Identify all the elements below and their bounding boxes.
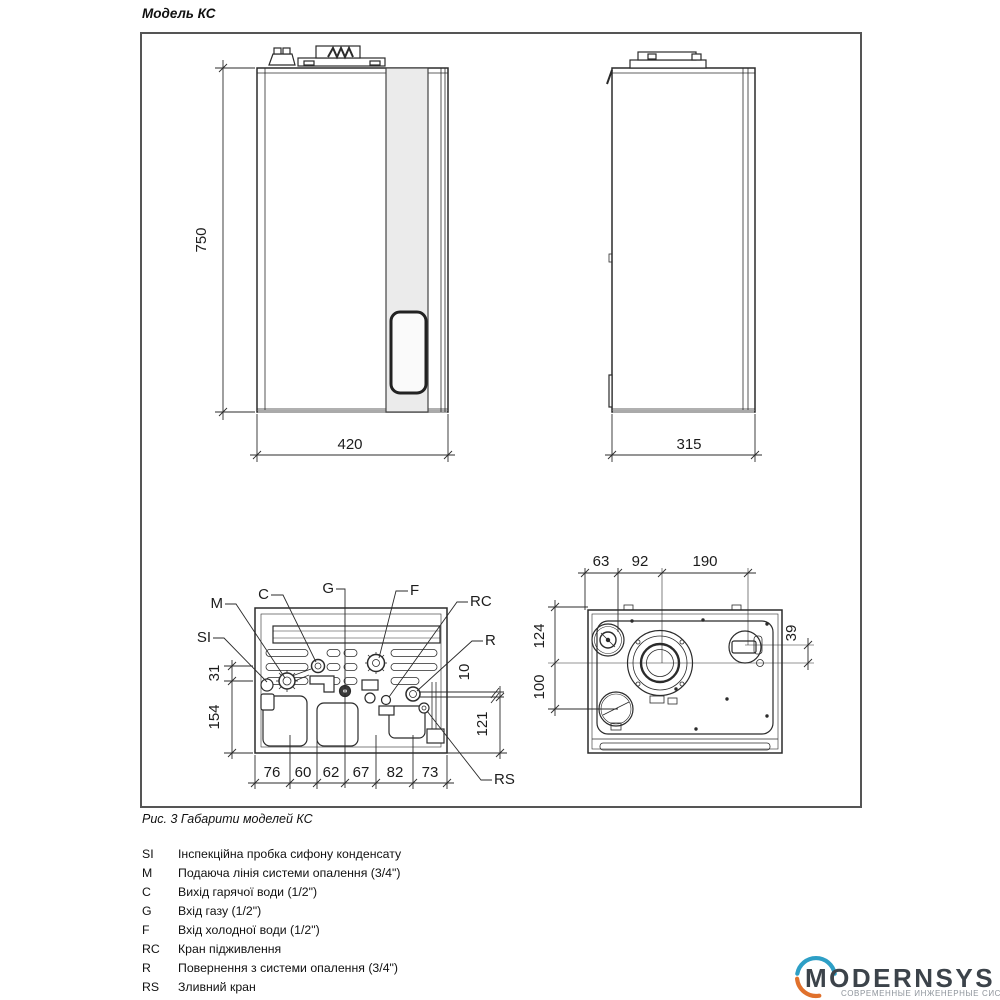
port-m-valve [276,670,298,692]
port-label-rs: RS [494,771,515,788]
legend-key: F [142,921,178,940]
legend-item-rc: RC Кран підживлення [142,940,401,959]
legend-item-g: G Вхід газу (1/2") [142,902,401,921]
display-window [391,312,426,393]
legend-description: Зливний кран [178,978,256,997]
legend-key: RS [142,978,178,997]
port-label-c: C [258,586,269,603]
logo-tagline: СОВРЕМЕННЫЕ ИНЖЕНЕРНЫЕ СИСТЕМЫ [841,989,1000,998]
modernsys-logo: MODERNSYS СОВРЕМЕННЫЕ ИНЖЕНЕРНЫЕ СИСТЕМЫ [790,950,1000,1000]
legend-key: R [142,959,178,978]
top-dim-190: 190 [692,553,717,570]
port-label-m: M [211,595,224,612]
bottom-dim-76: 76 [264,764,281,781]
bottom-dim-121: 121 [474,711,491,736]
side-view-drawing: 315 [605,52,762,462]
legend-description: Інспекційна пробка сифону конденсату [178,845,401,864]
manual-page: Модель КС [0,0,1000,1000]
bottom-dim-154: 154 [206,704,223,729]
bottom-dim-82: 82 [387,764,404,781]
legend-key: G [142,902,178,921]
top-dim-92: 92 [632,553,649,570]
bottom-dim-31: 31 [206,665,223,682]
top-dim-63: 63 [593,553,610,570]
legend-key: C [142,883,178,902]
front-height-dim: 750 [193,227,210,252]
legend-item-si: SI Інспекційна пробка сифону конденсату [142,845,401,864]
legend-description: Вихід гарячої води (1/2") [178,883,317,902]
figure-caption: Рис. 3 Габарити моделей КС [142,812,313,826]
port-f-valve [365,652,387,674]
top-dim-124: 124 [531,623,548,648]
bottom-dim-62: 62 [323,764,340,781]
bottom-dim-60: 60 [295,764,312,781]
port-label-f: F [410,582,419,599]
port-label-rc: RC [470,593,492,610]
port-label-g: G [322,580,334,597]
legend-item-r: R Повернення з системи опалення (3/4") [142,959,401,978]
legend-description: Кран підживлення [178,940,281,959]
side-depth-dim: 315 [676,436,701,453]
bottom-dim-10: 10 [456,664,473,681]
legend-description: Вхід холодної води (1/2") [178,921,320,940]
legend: SI Інспекційна пробка сифону конденсату … [142,845,401,997]
front-width-dim: 420 [337,436,362,453]
dimension-drawing: 750 420 [140,32,862,808]
legend-description: Повернення з системи опалення (3/4") [178,959,398,978]
page-title: Модель КС [142,6,216,21]
legend-description: Подаюча лінія системи опалення (3/4") [178,864,400,883]
bottom-dim-73: 73 [422,764,439,781]
legend-key: M [142,864,178,883]
top-dim-100: 100 [531,674,548,699]
port-label-r: R [485,632,496,649]
legend-item-m: M Подаюча лінія системи опалення (3/4") [142,864,401,883]
legend-item-c: C Вихід гарячої води (1/2") [142,883,401,902]
bottom-dim-67: 67 [353,764,370,781]
legend-item-f: F Вхід холодної води (1/2") [142,921,401,940]
port-label-si: SI [197,629,211,646]
legend-item-rs: RS Зливний кран [142,978,401,997]
top-dim-39: 39 [783,625,800,642]
legend-key: RC [142,940,178,959]
legend-description: Вхід газу (1/2") [178,902,261,921]
legend-key: SI [142,845,178,864]
